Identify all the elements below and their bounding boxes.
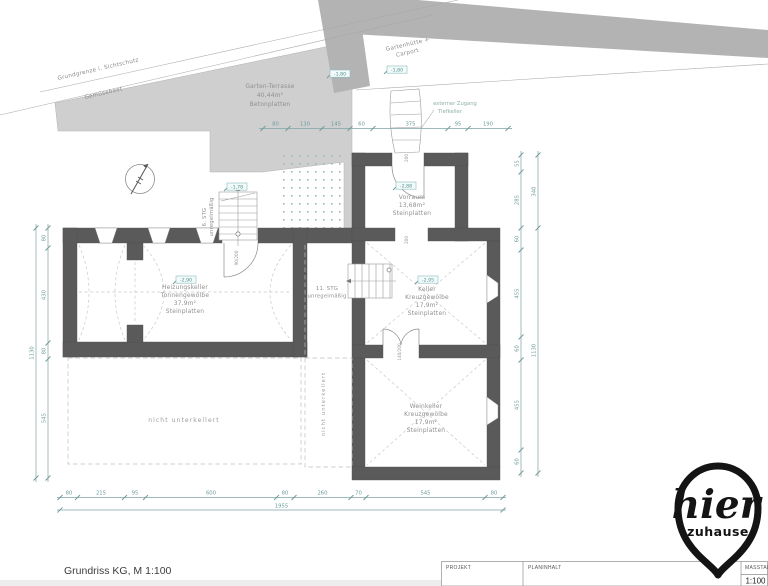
hier-zuhause-logo: hier zuhause: [672, 466, 763, 575]
svg-text:145: 145: [331, 122, 341, 128]
svg-text:Keller: Keller: [418, 287, 436, 293]
access-leader-line: [420, 110, 434, 130]
svg-text:80: 80: [42, 234, 48, 241]
north-arrow-icon: [126, 164, 155, 194]
svg-text:Steinplatten: Steinplatten: [408, 311, 446, 317]
svg-text:60: 60: [515, 458, 521, 465]
svg-text:Heizungskeller: Heizungskeller: [162, 285, 208, 291]
svg-text:95: 95: [132, 491, 139, 497]
external-access-line1: externer Zugang: [433, 101, 477, 107]
svg-text:600: 600: [206, 491, 217, 497]
svg-text:6. STG: 6. STG: [202, 208, 208, 227]
level-marker: -1,80: [384, 66, 407, 74]
room-keller: Keller Kreuzgewölbe 17,9m² Steinplatten: [405, 287, 449, 317]
room-vorraum: Vorraum 13,68m² Steinplatten: [393, 195, 431, 217]
svg-text:Steinplatten: Steinplatten: [407, 428, 445, 434]
svg-text:Kreuzgewölbe: Kreuzgewölbe: [404, 412, 448, 418]
door-wein-label: 140/200: [397, 343, 402, 361]
titleblock-scale-label: MASSTAB: [745, 565, 768, 571]
floor-plan-sheet: Grundgrenze i. Sichtschutz Gemüsebeet Ga…: [0, 0, 768, 586]
sheet-footer: Grundriss KG, M 1:100 PROJEKT PLANINHALT…: [0, 562, 768, 586]
svg-text:80: 80: [42, 347, 48, 354]
door-entrance-label: 200: [404, 154, 409, 162]
svg-text:17,9m²: 17,9m²: [415, 419, 437, 426]
svg-text:unregelmäßig: unregelmäßig: [307, 294, 346, 300]
terrace-name: Garten-Terrasse: [245, 84, 294, 90]
svg-text:17,9m²: 17,9m²: [416, 302, 438, 309]
svg-text:130: 130: [300, 122, 311, 128]
level-marker: -1,78: [224, 183, 247, 191]
svg-text:190: 190: [483, 122, 494, 128]
svg-text:455: 455: [515, 288, 521, 298]
svg-text:80: 80: [272, 122, 279, 128]
svg-text:60: 60: [515, 345, 521, 352]
svg-text:-2,90: -2,90: [180, 277, 192, 283]
door-heizung-label: 90/200: [234, 250, 239, 265]
stair-upper: [219, 186, 257, 246]
logo-word1: hier: [672, 482, 763, 528]
svg-text:Weinkeller: Weinkeller: [410, 404, 443, 410]
svg-text:55: 55: [515, 160, 521, 167]
stair-lower: [346, 264, 396, 298]
level-marker: -2,95: [415, 276, 438, 284]
svg-text:-2,88: -2,88: [400, 183, 412, 189]
dimension-chain-left: 80 430 80 545 1130: [30, 224, 51, 482]
svg-text:unregelmäßig: unregelmäßig: [209, 197, 215, 236]
room-weinkeller: Weinkeller Kreuzgewölbe 17,9m² Steinplat…: [404, 404, 448, 434]
terrace-area-label: 40,44m²: [257, 92, 283, 99]
svg-text:Steinplatten: Steinplatten: [393, 211, 431, 217]
terrace-floor-label: Betonplatten: [250, 102, 291, 108]
external-access-line2: Tiefkeller: [437, 109, 463, 115]
svg-text:375: 375: [405, 122, 415, 128]
svg-text:430: 430: [42, 289, 48, 300]
not-excavated-vertical-label: nicht unterkellert: [321, 372, 327, 437]
dimension-chain-bottom: 80 215 95 600 80 260 70 545 80 1955: [57, 491, 506, 513]
svg-text:-1,78: -1,78: [231, 184, 243, 190]
svg-text:70: 70: [355, 491, 362, 497]
titleblock-content-label: PLANINHALT: [528, 565, 561, 571]
not-excavated-label: nicht unterkellert: [148, 417, 220, 424]
svg-text:1130: 1130: [532, 343, 538, 357]
level-marker: -1,80: [327, 70, 350, 78]
svg-text:13,68m²: 13,68m²: [399, 202, 425, 209]
svg-text:11. STG: 11. STG: [316, 286, 338, 292]
door-vorraum-label: 200: [404, 236, 409, 244]
pergola-dotted-area: [282, 150, 344, 230]
svg-text:-1,80: -1,80: [334, 71, 346, 77]
carport-outline-line: [356, 64, 768, 90]
svg-text:260: 260: [317, 491, 328, 497]
room-heizungskeller: Heizungskeller Tonnengewölbe 37,9m² Stei…: [160, 285, 210, 315]
svg-text:455: 455: [515, 400, 521, 410]
dimension-chain-right: 55 285 60 455 60 455 60 340 1130: [515, 151, 541, 477]
level-marker: -2,90: [173, 276, 196, 284]
svg-text:-1,80: -1,80: [391, 67, 403, 73]
svg-text:340: 340: [532, 186, 538, 197]
svg-text:60: 60: [358, 122, 365, 128]
stair-lower-label: 11. STG unregelmäßig: [307, 286, 346, 300]
svg-text:80: 80: [66, 491, 73, 497]
svg-text:95: 95: [455, 122, 462, 128]
svg-text:Kreuzgewölbe: Kreuzgewölbe: [405, 295, 449, 301]
svg-text:-2,95: -2,95: [422, 277, 434, 283]
svg-text:Vorraum: Vorraum: [399, 195, 425, 201]
logo-word2: zuhause: [687, 524, 749, 539]
svg-text:545: 545: [42, 413, 48, 423]
svg-text:1955: 1955: [275, 504, 288, 510]
titleblock-project-label: PROJEKT: [446, 565, 471, 571]
site-areas: [0, 0, 768, 230]
svg-text:37,9m²: 37,9m²: [174, 300, 196, 307]
svg-text:545: 545: [420, 491, 430, 497]
drawing-title: Grundriss KG, M 1:100: [64, 565, 172, 577]
svg-text:1130: 1130: [30, 346, 36, 360]
svg-text:Tonnengewölbe: Tonnengewölbe: [160, 293, 210, 299]
titleblock-scale-value: 1:100: [745, 577, 766, 586]
svg-text:285: 285: [515, 195, 521, 205]
sheet-edge-strip: [0, 580, 441, 586]
svg-text:Steinplatten: Steinplatten: [166, 309, 204, 315]
svg-text:215: 215: [96, 491, 106, 497]
boundary-label: Grundgrenze i. Sichtschutz: [57, 57, 139, 82]
svg-text:60: 60: [515, 235, 521, 242]
svg-text:80: 80: [491, 491, 498, 497]
level-marker: -2,88: [393, 182, 416, 190]
floor-plan-drawing: Grundgrenze i. Sichtschutz Gemüsebeet Ga…: [0, 0, 768, 586]
svg-text:80: 80: [282, 491, 289, 497]
